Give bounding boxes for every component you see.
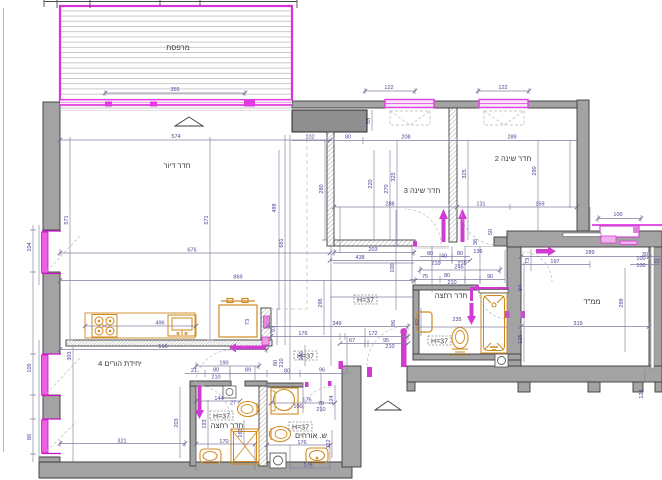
svg-text:100: 100: [636, 256, 645, 262]
svg-text:124: 124: [329, 395, 335, 404]
svg-text:355: 355: [170, 87, 179, 93]
svg-text:176: 176: [302, 398, 311, 404]
svg-text:296: 296: [318, 298, 324, 307]
svg-text:104: 104: [27, 242, 33, 251]
svg-text:100: 100: [636, 263, 645, 269]
svg-text:90: 90: [487, 274, 493, 280]
svg-text:220: 220: [368, 179, 374, 188]
svg-text:208: 208: [401, 135, 410, 141]
svg-text:H=37: H=37: [357, 298, 374, 305]
svg-text:חדר רחצה: חדר רחצה: [211, 421, 244, 430]
svg-text:325: 325: [462, 169, 468, 178]
svg-text:50: 50: [488, 229, 494, 235]
svg-text:203: 203: [174, 418, 180, 427]
svg-text:96: 96: [319, 368, 325, 374]
svg-text:210: 210: [211, 375, 220, 381]
svg-text:75: 75: [422, 274, 428, 280]
svg-text:89: 89: [245, 368, 251, 374]
svg-text:510: 510: [158, 344, 167, 350]
svg-text:210: 210: [279, 358, 285, 367]
svg-text:203: 203: [368, 247, 377, 253]
svg-text:496: 496: [155, 321, 164, 327]
svg-text:94: 94: [518, 285, 524, 291]
svg-text:321: 321: [117, 439, 126, 445]
svg-text:499: 499: [272, 203, 278, 212]
svg-text:681: 681: [279, 238, 285, 247]
svg-text:122: 122: [498, 85, 507, 91]
svg-text:270: 270: [384, 184, 390, 193]
svg-text:חדר שינה 2: חדר שינה 2: [495, 154, 532, 163]
svg-text:36: 36: [473, 239, 479, 245]
svg-text:131: 131: [476, 202, 485, 208]
svg-text:574: 574: [171, 134, 180, 140]
svg-text:80: 80: [345, 135, 351, 141]
svg-text:438: 438: [355, 255, 364, 261]
svg-text:93: 93: [271, 326, 277, 332]
svg-text:55: 55: [366, 118, 372, 124]
svg-text:27: 27: [230, 401, 236, 407]
svg-text:303: 303: [67, 351, 73, 360]
svg-text:חדר רחצה: חדר רחצה: [435, 291, 468, 300]
svg-text:67: 67: [349, 338, 355, 344]
svg-text:H=37: H=37: [292, 425, 309, 432]
svg-text:יחידת הורים 4: יחידת הורים 4: [98, 359, 142, 368]
svg-text:124: 124: [639, 389, 645, 398]
svg-text:105: 105: [27, 363, 33, 372]
svg-text:100: 100: [613, 212, 622, 218]
svg-text:102: 102: [305, 135, 314, 141]
svg-text:ש. אורחים: ש. אורחים: [295, 431, 327, 440]
svg-text:210: 210: [431, 261, 440, 267]
svg-text:חדר שינה 3: חדר שינה 3: [404, 186, 441, 195]
svg-text:197: 197: [550, 259, 559, 265]
svg-text:319: 319: [573, 321, 582, 327]
svg-text:289: 289: [585, 250, 594, 256]
svg-text:144: 144: [214, 396, 223, 402]
svg-text:245: 245: [454, 265, 463, 271]
svg-text:210: 210: [316, 407, 325, 413]
svg-text:21: 21: [191, 368, 197, 374]
svg-text:176: 176: [303, 463, 312, 469]
svg-text:חדר דיור: חדר דיור: [163, 161, 190, 170]
svg-text:73: 73: [525, 258, 531, 264]
svg-text:190: 190: [219, 361, 228, 367]
svg-text:571: 571: [64, 215, 70, 224]
svg-text:80: 80: [444, 273, 450, 279]
svg-text:676: 676: [187, 248, 196, 254]
svg-text:ממ"ד: ממ"ד: [583, 297, 600, 306]
svg-text:325: 325: [391, 172, 397, 181]
svg-text:280: 280: [319, 184, 325, 193]
svg-text:193: 193: [202, 419, 208, 428]
svg-text:H=37: H=37: [431, 339, 448, 346]
svg-text:299: 299: [619, 298, 625, 307]
svg-text:312: 312: [326, 439, 332, 448]
svg-text:172: 172: [368, 331, 377, 337]
svg-text:80: 80: [457, 251, 463, 257]
svg-text:73: 73: [245, 319, 251, 325]
svg-text:176: 176: [298, 331, 307, 337]
svg-text:122: 122: [384, 85, 393, 91]
svg-text:80: 80: [213, 368, 219, 374]
svg-text:290: 290: [532, 166, 538, 175]
svg-text:מרפסת: מרפסת: [166, 43, 190, 52]
svg-text:80: 80: [284, 369, 290, 375]
svg-text:159: 159: [535, 202, 544, 208]
svg-text:H=37: H=37: [213, 414, 230, 421]
svg-text:H=37: H=37: [297, 354, 314, 361]
svg-text:176: 176: [297, 440, 306, 446]
svg-text:235: 235: [452, 317, 461, 323]
svg-text:136: 136: [473, 249, 482, 255]
svg-text:349: 349: [332, 321, 341, 327]
svg-text:289: 289: [507, 135, 516, 141]
svg-text:170: 170: [219, 439, 228, 445]
svg-text:288: 288: [385, 202, 394, 208]
svg-text:22: 22: [654, 259, 660, 265]
svg-text:80: 80: [427, 251, 433, 257]
svg-text:210: 210: [447, 280, 456, 286]
svg-text:210: 210: [385, 344, 394, 350]
svg-text:869: 869: [233, 275, 242, 281]
svg-text:96: 96: [391, 320, 397, 326]
svg-text:100: 100: [390, 263, 396, 272]
svg-text:100: 100: [293, 404, 302, 410]
svg-text:88: 88: [27, 434, 33, 440]
svg-text:40: 40: [441, 254, 447, 260]
svg-text:571: 571: [204, 215, 210, 224]
svg-text:125: 125: [518, 334, 524, 343]
svg-text:62: 62: [415, 319, 421, 325]
